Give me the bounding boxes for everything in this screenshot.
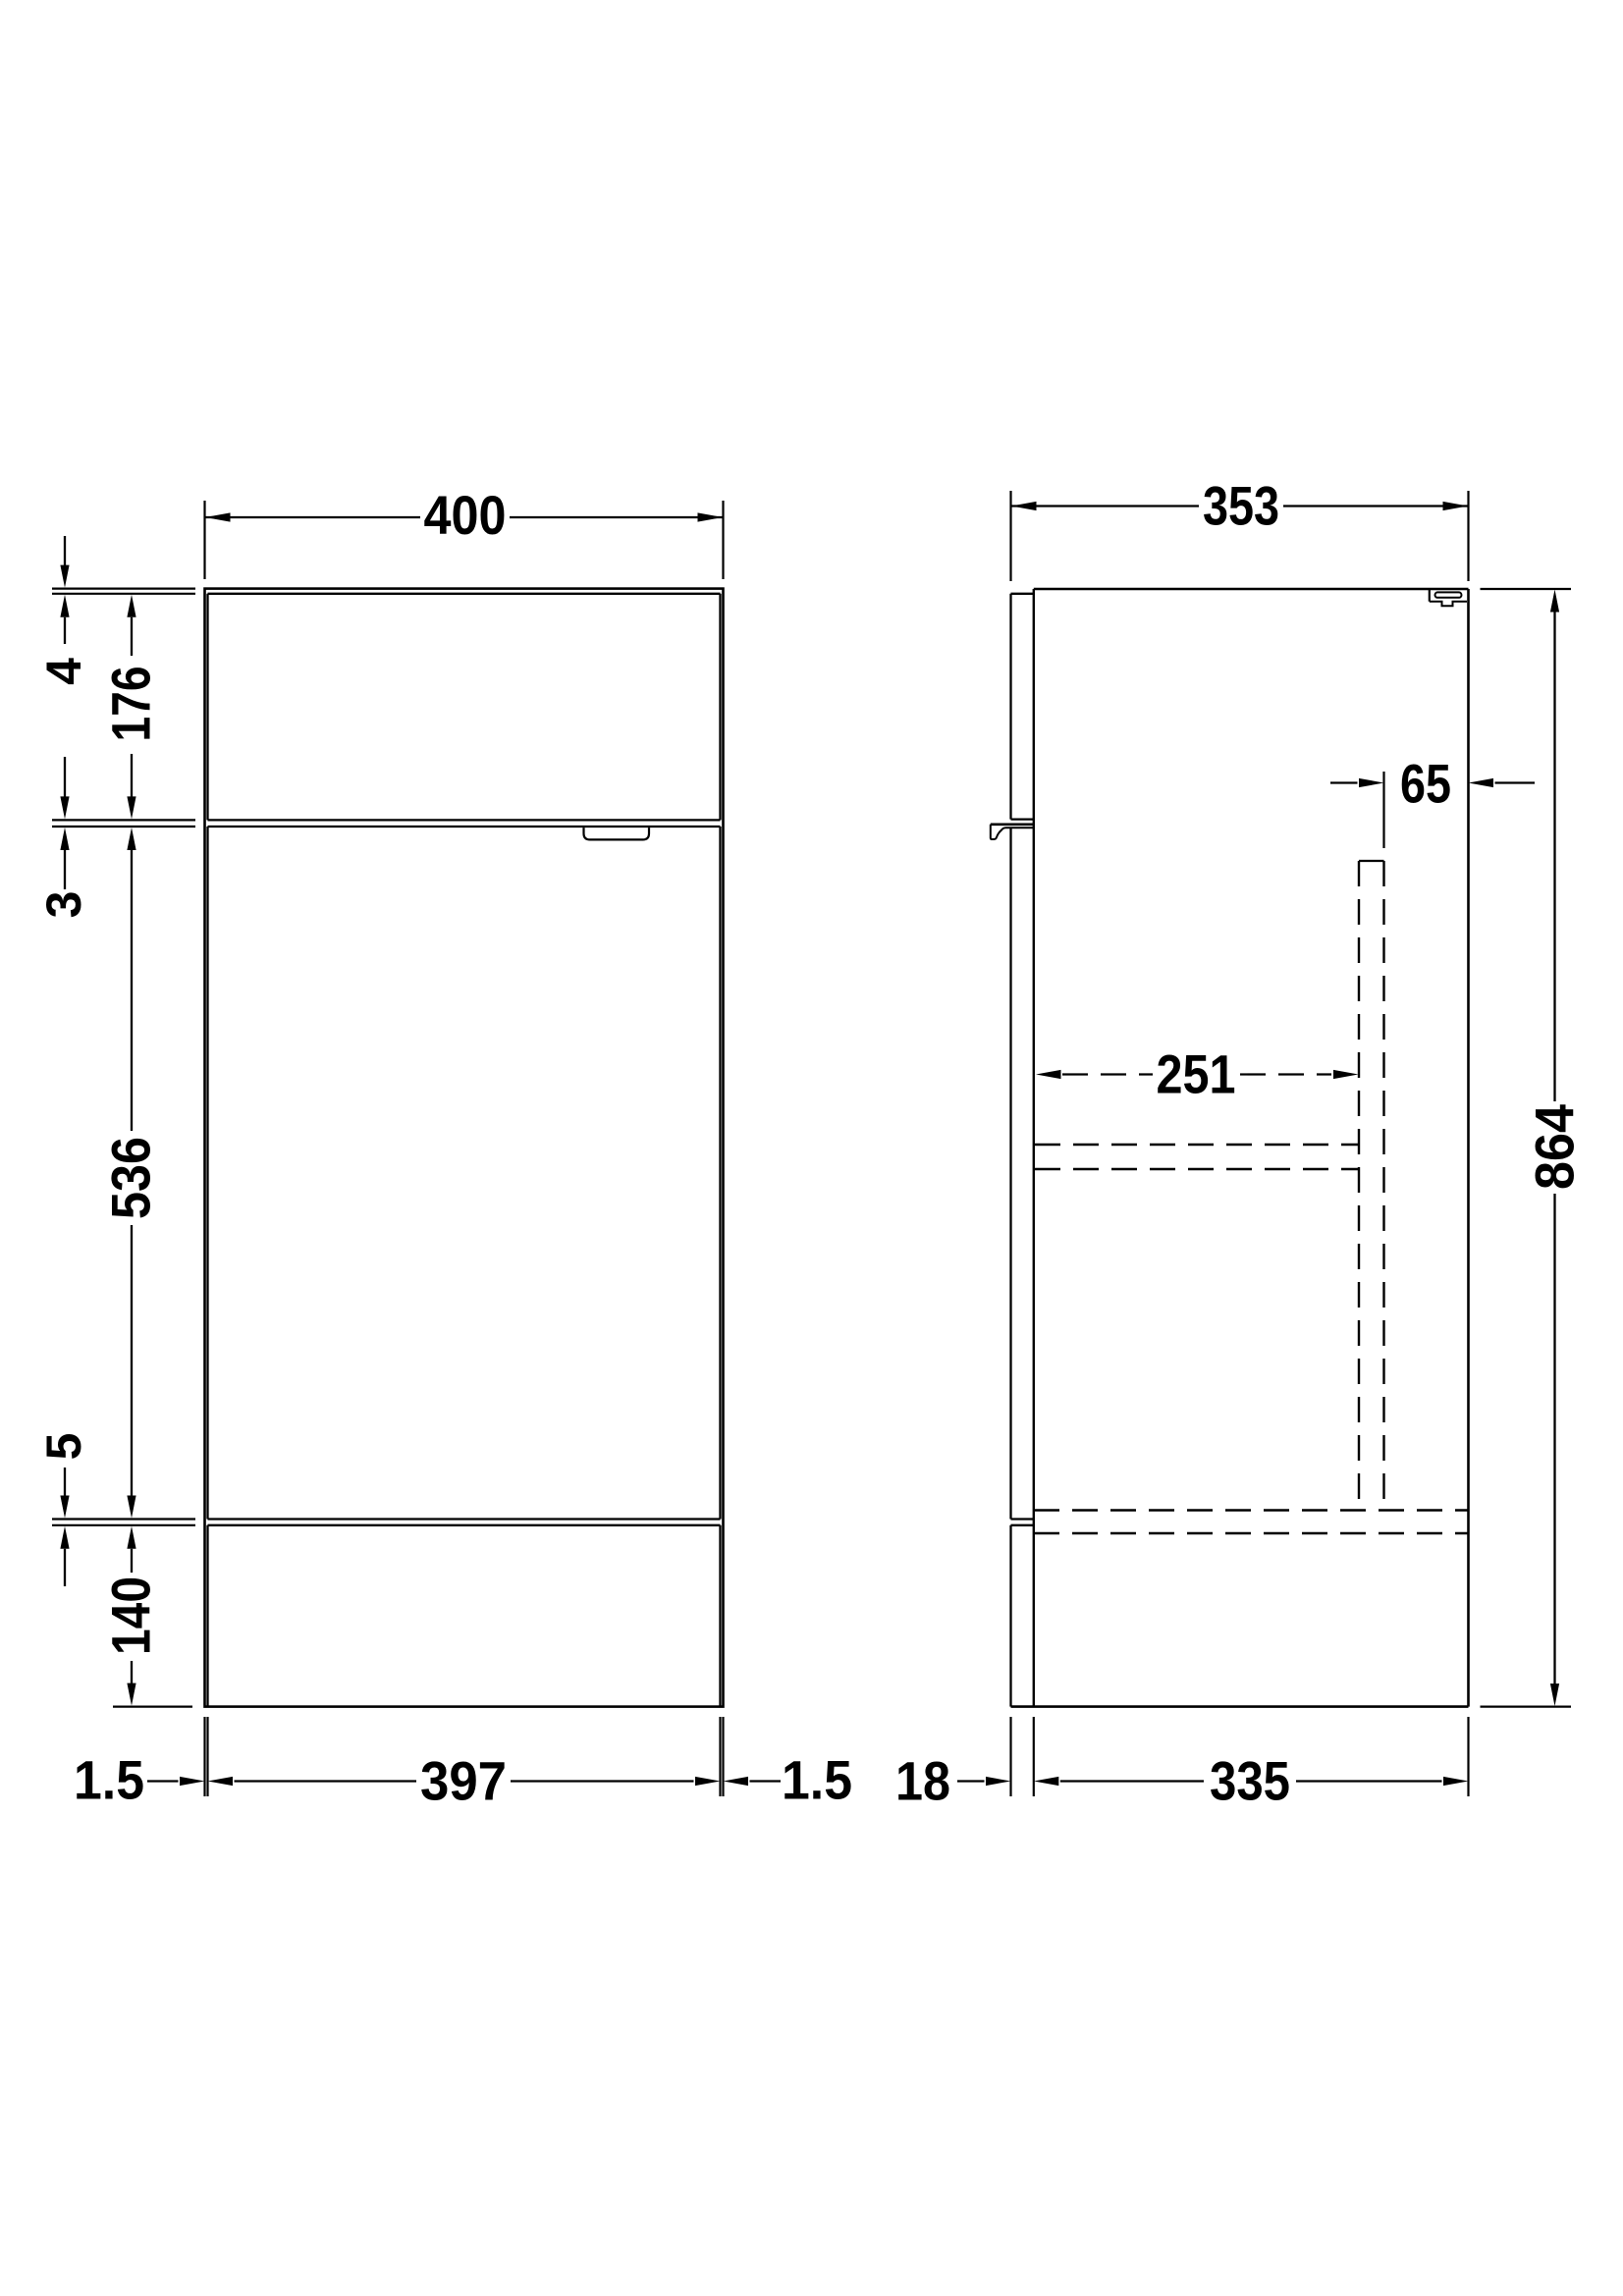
svg-text:65: 65 <box>1400 752 1451 814</box>
svg-text:335: 335 <box>1210 1749 1290 1811</box>
svg-text:536: 536 <box>99 1137 161 1219</box>
svg-text:140: 140 <box>99 1576 161 1655</box>
svg-text:176: 176 <box>99 667 161 742</box>
svg-text:5: 5 <box>36 1433 91 1461</box>
svg-text:353: 353 <box>1203 474 1279 536</box>
svg-text:251: 251 <box>1157 1042 1236 1104</box>
svg-text:864: 864 <box>1523 1104 1585 1190</box>
svg-text:1.5: 1.5 <box>74 1748 144 1810</box>
svg-text:400: 400 <box>424 484 507 546</box>
svg-text:18: 18 <box>895 1749 950 1811</box>
svg-text:4: 4 <box>36 658 91 685</box>
svg-text:3: 3 <box>36 891 91 919</box>
svg-text:1.5: 1.5 <box>782 1748 852 1810</box>
svg-text:397: 397 <box>420 1749 507 1811</box>
